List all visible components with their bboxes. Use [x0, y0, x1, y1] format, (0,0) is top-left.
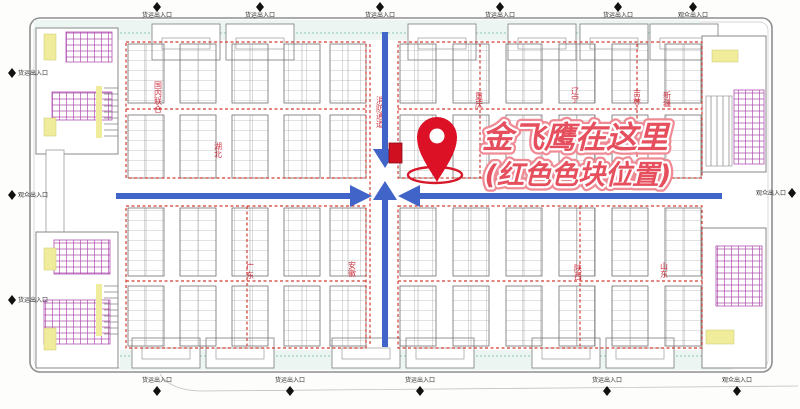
accent-block [96, 284, 102, 336]
accent-block [706, 330, 734, 344]
gate-label: 货运出入口 [275, 376, 305, 384]
exhibition-floorplan: 国内联合湖北广东安徽消防通道重庆辽宁吉林新疆陕西山东 金飞鹰在这里 金飞鹰在这里… [0, 0, 800, 409]
gate-label: 观众出入口 [678, 11, 708, 19]
facility-block [66, 32, 112, 62]
gate-label: 货运出入口 [405, 376, 435, 384]
gate-label: 货运出入口 [603, 11, 633, 19]
floorplan-canvas: 国内联合湖北广东安徽消防通道重庆辽宁吉林新疆陕西山东 金飞鹰在这里 金飞鹰在这里… [0, 0, 800, 409]
region-label: 国内联合 [154, 81, 163, 114]
gate-label: 货运出入口 [142, 376, 172, 384]
gate-label: 观众出入口 [722, 376, 752, 384]
facility-block [52, 92, 112, 120]
facility-block [734, 90, 764, 164]
annotation-line2: (红色色块位置) [485, 160, 672, 191]
region-label: 安徽 [348, 260, 357, 278]
facility-block [706, 96, 732, 166]
gate-label: 货运出入口 [485, 11, 515, 19]
left-column [46, 150, 64, 234]
region-label: 重庆 [475, 91, 484, 109]
gate-label: 货运出入口 [18, 69, 48, 77]
region-label: 辽宁 [571, 87, 580, 103]
accent-block [712, 50, 738, 62]
accent-block [44, 118, 56, 136]
accent-block [96, 86, 102, 138]
accent-block [44, 248, 56, 270]
highlight-red-block [389, 143, 402, 163]
accent-block [44, 328, 56, 350]
gate-label: 货运出入口 [592, 376, 622, 384]
annotation: 金飞鹰在这里 金飞鹰在这里 (红色色块位置) (红色色块位置) [482, 120, 671, 191]
annotation-line1: 金飞鹰在这里 [482, 120, 671, 156]
facility-block [54, 240, 110, 274]
gate-label: 观众出入口 [18, 191, 48, 199]
region-label: 新疆 [663, 90, 672, 108]
gate-label: 货运出入口 [18, 296, 48, 304]
gate-label: 观众出入口 [756, 189, 786, 197]
region-label: 湖北 [214, 142, 223, 159]
facility-block [716, 246, 762, 306]
gate-label: 货运出入口 [365, 11, 395, 19]
accent-block [44, 34, 56, 60]
region-label: 陕西 [574, 263, 583, 281]
region-label: 广东 [246, 262, 255, 279]
region-label: 山东 [660, 261, 669, 278]
gate-label: 货运出入口 [245, 11, 275, 19]
gate-label: 货运出入口 [142, 11, 172, 19]
region-label: 吉林 [633, 89, 642, 106]
pin-hole [430, 129, 445, 144]
